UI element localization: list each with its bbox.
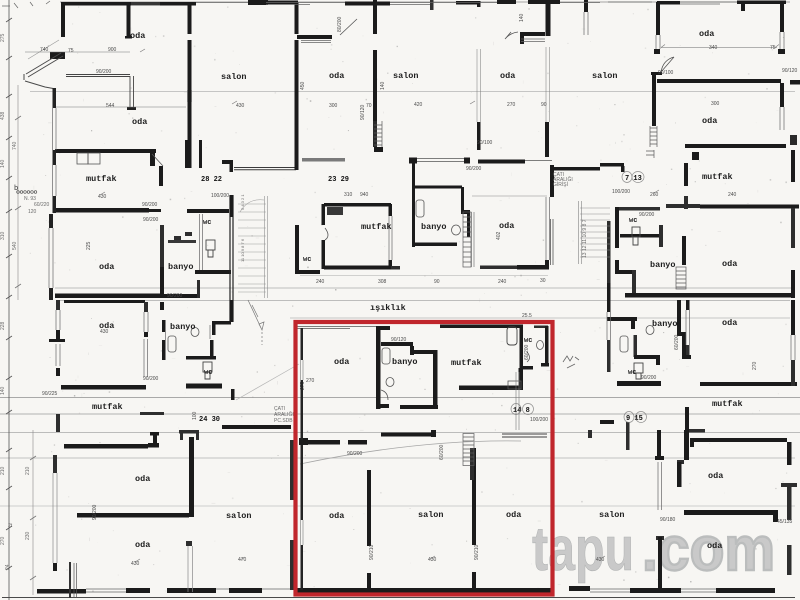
svg-text:salon: salon	[599, 510, 625, 520]
svg-text:oda: oda	[702, 116, 717, 126]
svg-text:PC.SDB: PC.SDB	[274, 418, 293, 424]
svg-text:oda: oda	[329, 71, 344, 81]
svg-text:24 30: 24 30	[199, 416, 220, 424]
svg-text:230: 230	[25, 531, 31, 540]
svg-text:banyo: banyo	[650, 260, 676, 270]
svg-text:544: 544	[106, 103, 115, 109]
svg-text:310: 310	[0, 231, 6, 240]
svg-text:2t: 2t	[8, 523, 13, 529]
svg-text:75: 75	[68, 48, 74, 54]
svg-text:banyo: banyo	[170, 322, 196, 332]
svg-text:90/200: 90/200	[167, 293, 183, 299]
svg-text:oda: oda	[708, 471, 723, 481]
svg-text:oda: oda	[499, 221, 514, 231]
svg-text:270: 270	[507, 102, 516, 108]
svg-text:420: 420	[414, 102, 423, 108]
svg-text:wc: wc	[629, 217, 637, 225]
svg-text:b: b	[14, 185, 18, 193]
svg-text:23 29: 23 29	[328, 176, 349, 184]
svg-text:402: 402	[496, 231, 502, 240]
svg-text:mutfak: mutfak	[702, 172, 733, 182]
svg-text:90/200: 90/200	[142, 202, 158, 208]
svg-text:300: 300	[329, 103, 338, 109]
svg-text:240: 240	[498, 279, 507, 285]
svg-text:90/200: 90/200	[466, 166, 482, 172]
svg-text:7 13: 7 13	[625, 175, 642, 183]
svg-text:100/200: 100/200	[612, 189, 630, 195]
svg-text:oda: oda	[99, 262, 114, 272]
svg-text:100/200: 100/200	[211, 193, 229, 199]
svg-text:salon: salon	[393, 71, 419, 81]
svg-text:banyo: banyo	[652, 319, 678, 329]
svg-text:120: 120	[28, 209, 37, 215]
svg-text:oda: oda	[135, 540, 150, 550]
svg-text:90/180: 90/180	[660, 517, 676, 523]
svg-text:13 12 11 10 9 8 7: 13 12 11 10 9 8 7	[582, 219, 588, 258]
svg-text:270: 270	[0, 536, 6, 545]
svg-text:450: 450	[300, 81, 306, 90]
svg-text:340: 340	[709, 45, 718, 51]
svg-text:430: 430	[98, 194, 107, 200]
svg-text:100/200: 100/200	[530, 417, 548, 423]
svg-text:438: 438	[0, 111, 6, 120]
svg-text:mutfak: mutfak	[712, 399, 743, 409]
svg-text:90/200: 90/200	[96, 69, 112, 75]
svg-text:75: 75	[770, 45, 776, 51]
svg-text:tapu: tapu	[532, 514, 634, 583]
svg-text:80/200: 80/200	[337, 16, 343, 32]
svg-text:90/120: 90/120	[782, 68, 798, 74]
svg-text:ARALIĞI: ARALIĞI	[274, 411, 294, 418]
svg-text:90/210: 90/210	[474, 544, 480, 560]
svg-text:oda: oda	[722, 318, 737, 328]
svg-text:salon: salon	[592, 71, 618, 81]
svg-text:90/200: 90/200	[639, 212, 655, 218]
svg-text:90/100: 90/100	[658, 70, 674, 76]
svg-text:90/200: 90/200	[92, 504, 98, 520]
svg-text:90/120: 90/120	[391, 337, 407, 343]
svg-text:mutfak: mutfak	[92, 402, 123, 412]
svg-text:60/200: 60/200	[439, 444, 445, 460]
svg-text:210: 210	[0, 466, 6, 475]
svg-text:140: 140	[0, 386, 6, 395]
svg-text:24: 24	[5, 564, 11, 570]
svg-text:90/210: 90/210	[369, 544, 375, 560]
svg-text:140: 140	[380, 81, 386, 90]
svg-text:GİRİŞİ: GİRİŞİ	[553, 181, 568, 188]
svg-text:430: 430	[236, 103, 245, 109]
svg-text:90/225: 90/225	[42, 391, 58, 397]
svg-text:wc: wc	[203, 219, 211, 227]
svg-text:wc: wc	[524, 337, 532, 345]
svg-text:14 8: 14 8	[513, 407, 530, 415]
svg-text:90: 90	[434, 279, 440, 285]
svg-text:mutfak: mutfak	[451, 358, 482, 368]
svg-text:11 10 9 8 7 6: 11 10 9 8 7 6	[240, 238, 245, 262]
svg-text:270: 270	[752, 361, 758, 370]
svg-text:salon: salon	[226, 511, 252, 521]
svg-text:470: 470	[238, 557, 247, 563]
svg-text:wc: wc	[303, 256, 311, 264]
svg-text:45/135: 45/135	[777, 519, 793, 525]
svg-text:540: 540	[12, 241, 18, 250]
svg-text:740: 740	[12, 141, 18, 150]
svg-text:70: 70	[366, 103, 372, 109]
svg-text:210: 210	[25, 466, 31, 475]
svg-text:228: 228	[0, 321, 6, 330]
svg-text:270: 270	[306, 378, 315, 384]
svg-text:wc: wc	[628, 369, 636, 377]
svg-text:banyo: banyo	[168, 262, 194, 272]
svg-text:banyo: banyo	[421, 222, 447, 232]
svg-text:oda: oda	[506, 510, 521, 520]
svg-text:oda: oda	[334, 357, 349, 367]
svg-text:mutfak: mutfak	[361, 222, 392, 232]
svg-text:90/200: 90/200	[143, 376, 159, 382]
svg-text:430: 430	[100, 329, 109, 335]
svg-text:60/200: 60/200	[674, 334, 680, 350]
svg-text:100: 100	[192, 411, 198, 420]
svg-text:310: 310	[344, 192, 353, 198]
svg-text:5 4 3 2 1: 5 4 3 2 1	[240, 194, 245, 210]
svg-text:90/200: 90/200	[641, 375, 657, 381]
svg-text:oda: oda	[135, 474, 150, 484]
svg-text:oda: oda	[329, 511, 344, 521]
svg-text:275: 275	[0, 33, 6, 42]
svg-text:90/200: 90/200	[143, 217, 159, 223]
svg-text:oda: oda	[699, 29, 714, 39]
svg-text:mutfak: mutfak	[86, 174, 117, 184]
svg-text:banyo: banyo	[392, 357, 418, 367]
svg-text:ışıklık: ışıklık	[370, 303, 406, 313]
svg-text:25.5: 25.5	[522, 313, 532, 319]
svg-text:28 22: 28 22	[201, 176, 222, 184]
svg-text:430: 430	[596, 557, 605, 563]
svg-text:oda: oda	[132, 117, 147, 127]
svg-text:940: 940	[360, 192, 369, 198]
svg-text:90/120: 90/120	[360, 104, 366, 120]
svg-text:oda: oda	[500, 71, 515, 81]
svg-text:90/200: 90/200	[347, 451, 363, 457]
svg-text:140: 140	[0, 159, 6, 168]
svg-text:225: 225	[86, 241, 92, 250]
svg-text:9 15: 9 15	[626, 415, 643, 423]
svg-text:60/220: 60/220	[34, 202, 50, 208]
svg-text:240: 240	[316, 279, 325, 285]
svg-text:oda: oda	[722, 259, 737, 269]
svg-text:salon: salon	[221, 72, 247, 82]
svg-text:oda: oda	[707, 541, 722, 551]
svg-text:oda: oda	[130, 31, 145, 41]
svg-text:308: 308	[378, 279, 387, 285]
svg-text:30: 30	[540, 278, 546, 284]
svg-text:90/100: 90/100	[477, 140, 493, 146]
svg-text:240: 240	[728, 192, 737, 198]
svg-text:300: 300	[711, 101, 720, 107]
svg-text:90: 90	[541, 102, 547, 108]
svg-text:wc: wc	[204, 369, 212, 377]
svg-text:salon: salon	[418, 510, 444, 520]
svg-text:140: 140	[519, 13, 525, 22]
svg-text:60/200: 60/200	[524, 344, 530, 360]
